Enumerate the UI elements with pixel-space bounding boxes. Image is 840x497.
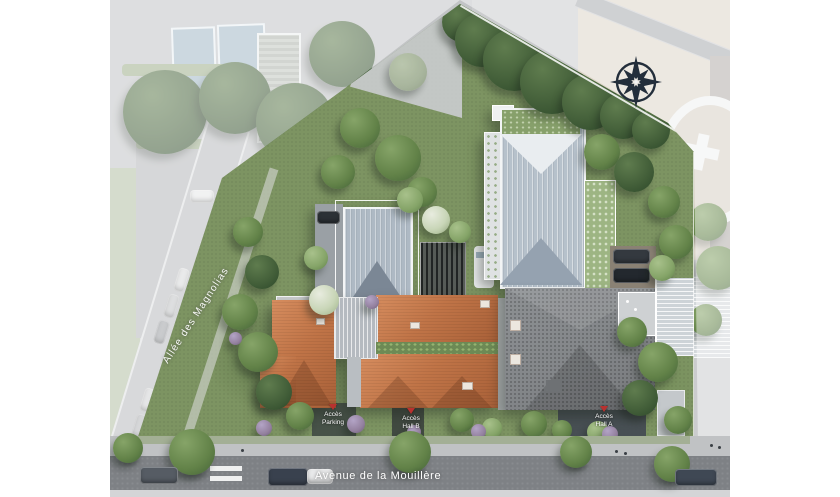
tree [560,436,592,468]
street-label-avenue: Avenue de la Mouillère [315,470,441,482]
access-text: Accès [386,415,436,423]
access-arrow-icon [600,406,608,412]
pedestrian [710,444,713,447]
access-label-hall-a: Accès Hall A [579,406,629,429]
parked-car [140,467,178,484]
avenue-street-zone [110,436,730,497]
access-text: Hall A [579,421,629,429]
access-text: Parking [308,419,358,427]
parked-car [268,468,308,486]
aerial-photo: Avenue de la Mouillère Allée des Magnoli… [110,0,730,497]
parked-car [675,469,717,486]
compass-rose-icon [608,54,664,110]
pedestrian [718,446,721,449]
pedestrian [241,449,244,452]
access-label-hall-b: Accès Hall B [386,408,436,431]
access-label-parking: Accès Parking [308,404,358,427]
tree [389,431,431,473]
access-text: Accès [579,413,629,421]
access-text: Hall B [386,423,436,431]
access-arrow-icon [407,408,415,414]
tree [113,433,143,463]
site-plan-image: Avenue de la Mouillère Allée des Magnoli… [0,0,840,497]
access-arrow-icon [329,404,337,410]
pedestrian [615,450,618,453]
access-text: Accès [308,411,358,419]
pedestrian [624,452,627,455]
